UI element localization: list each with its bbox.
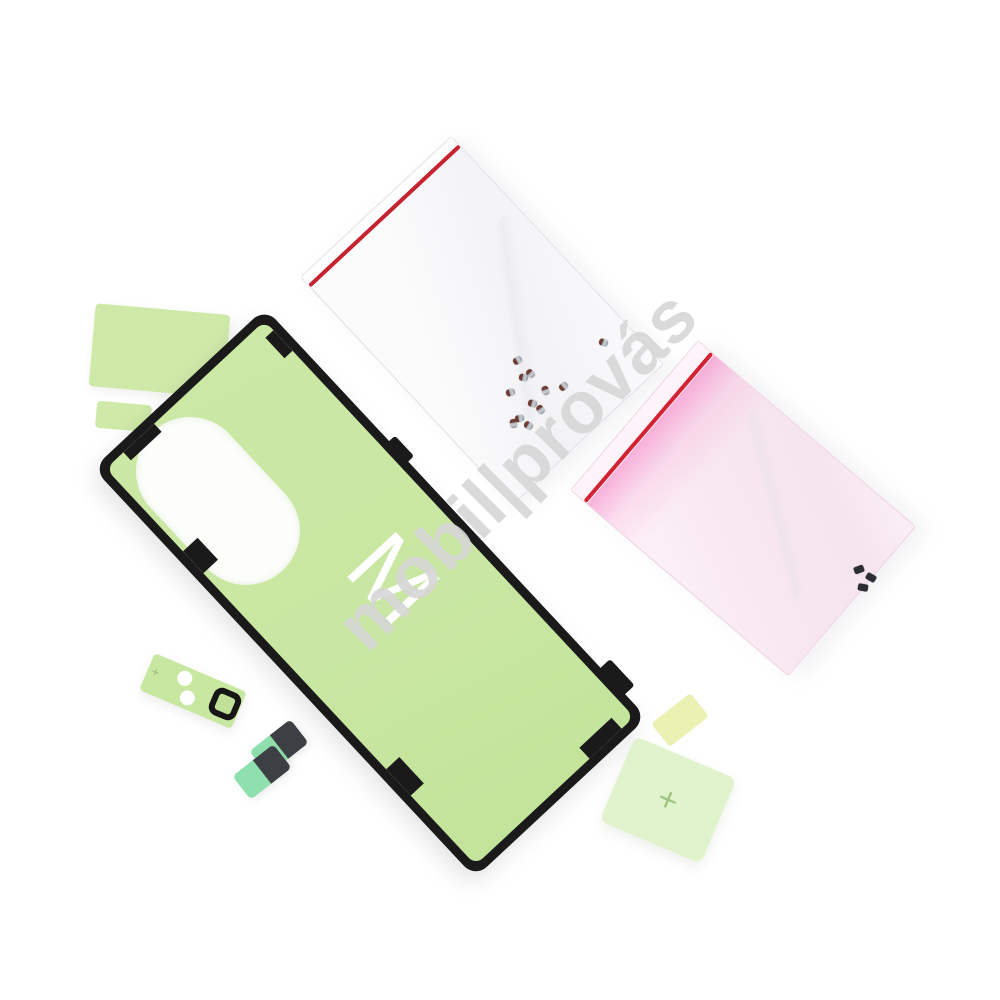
screw — [857, 583, 868, 592]
border-notch — [265, 330, 292, 358]
screw — [518, 373, 528, 381]
screw-hole — [175, 668, 195, 688]
product-photo: M + + mobil|provás — [0, 0, 1000, 1000]
border-notch — [386, 757, 424, 796]
pull-tab-plus: + — [599, 736, 736, 864]
pull-tab-yellow — [651, 693, 709, 747]
camera-lens-adhesive: + — [139, 653, 247, 729]
bag-fold-highlight — [374, 214, 622, 462]
zip-line — [308, 145, 461, 288]
plus-mark: + — [599, 736, 736, 864]
lens-ring — [206, 685, 244, 723]
screw-hole — [178, 688, 198, 708]
screw — [509, 418, 517, 428]
plus-mark: + — [149, 663, 163, 681]
bag-flap — [301, 137, 458, 285]
border-notch — [579, 718, 621, 759]
letter-m-marking: M — [311, 496, 475, 660]
camera-cutout — [114, 395, 323, 608]
